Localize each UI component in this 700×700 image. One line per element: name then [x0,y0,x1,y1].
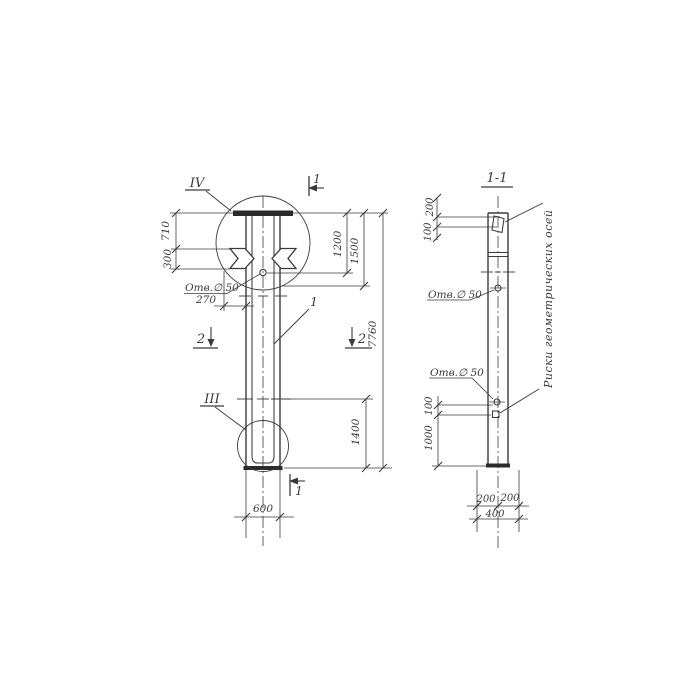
section-left-dimensions [427,290,494,470]
detail-bottom-leader [215,407,246,430]
section-2-right-label: 2 [357,332,366,347]
dim-300: 300 [162,249,174,269]
section-1-top-label: 1 [313,172,321,186]
dim-1400: 1400 [350,418,362,445]
dim-200-bottom-left: 200 [475,494,496,505]
dim-100-mid: 100 [424,396,435,416]
axes-note: Риски геометрических осей [542,210,555,389]
elevation-markers [185,176,372,496]
part-ref-leader [274,309,309,344]
bracket-right [272,249,296,269]
hole-label-elevation: Отв.∅ 50 [185,282,239,294]
hole-bottom-leader [472,378,493,399]
dim-710: 710 [160,221,172,241]
dim-1000: 1000 [424,425,435,451]
axes-note-leader-top [505,203,543,222]
section-title: 1-1 [487,171,508,186]
dim-600: 600 [253,503,273,515]
detail-top-label: IV [189,176,206,191]
cap-plate [233,211,293,217]
axes-note-leader-bottom [500,389,539,413]
section-1-bottom-label: 1 [295,484,303,498]
section-top-dimensions [433,194,500,242]
part-ref-label: 1 [310,295,318,309]
dim-100-top: 100 [423,222,434,242]
dim-400: 400 [484,509,505,520]
section-2-left-label: 2 [196,332,205,347]
column-drawing: 710 300 Отв.∅ 50 270 1200 1500 7760 1400… [0,0,700,700]
detail-bottom-label: III [203,392,220,407]
dim-200-top: 200 [425,197,436,218]
drawing-sheet: 710 300 Отв.∅ 50 270 1200 1500 7760 1400… [0,0,700,700]
section-2-right-arrow [349,339,356,347]
dim-1200: 1200 [332,230,344,257]
dim-200-bottom-right: 200 [499,493,520,504]
hole-label-section-bottom: Отв.∅ 50 [430,367,484,379]
dim-1500: 1500 [349,237,361,264]
dim-7760: 7760 [367,320,379,347]
section-bottom-end [486,464,510,468]
bracket-left [230,249,254,269]
hole-label-section-top: Отв.∅ 50 [428,289,482,301]
dim-270: 270 [195,294,216,306]
section-2-left-arrow [208,339,215,347]
detail-top-leader [206,191,231,211]
